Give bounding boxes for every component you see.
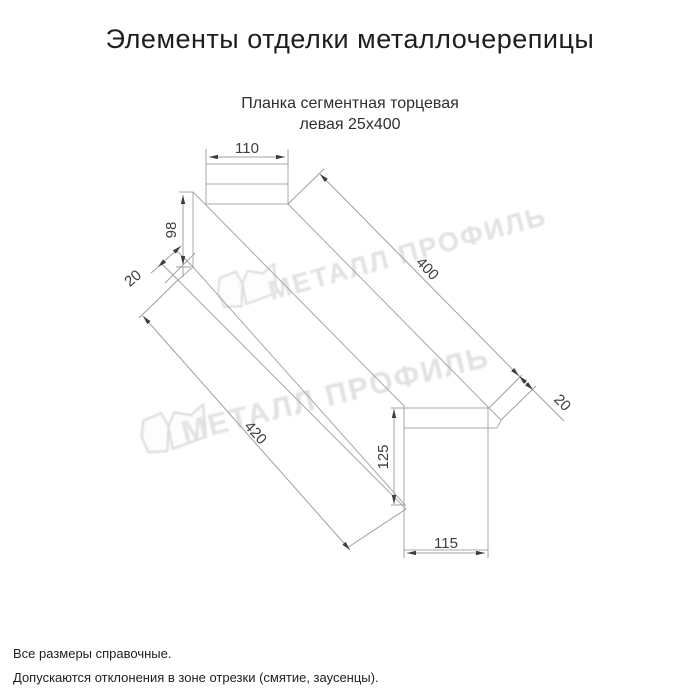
watermark-text: МЕТАЛЛ ПРОФИЛЬ bbox=[265, 200, 550, 306]
technical-drawing: МЕТАЛЛ ПРОФИЛЬ МЕТАЛЛ ПРОФИЛЬ bbox=[0, 0, 700, 700]
drawing-page: Элементы отделки металлочерепицы Планка … bbox=[0, 0, 700, 700]
dim-label-110: 110 bbox=[235, 140, 259, 157]
footer-note-2: Допускаются отклонения в зоне отрезки (с… bbox=[13, 670, 379, 686]
watermark-upper: МЕТАЛЛ ПРОФИЛЬ bbox=[214, 200, 550, 310]
dim-label-125: 125 bbox=[375, 444, 392, 469]
footer-note-1: Все размеры справочные. bbox=[13, 646, 171, 662]
dim-label-98: 98 bbox=[163, 222, 180, 239]
watermark-text: МЕТАЛЛ ПРОФИЛЬ bbox=[178, 341, 493, 450]
dim-label-115: 115 bbox=[434, 535, 458, 552]
dim-label-20-left: 20 bbox=[121, 267, 145, 291]
